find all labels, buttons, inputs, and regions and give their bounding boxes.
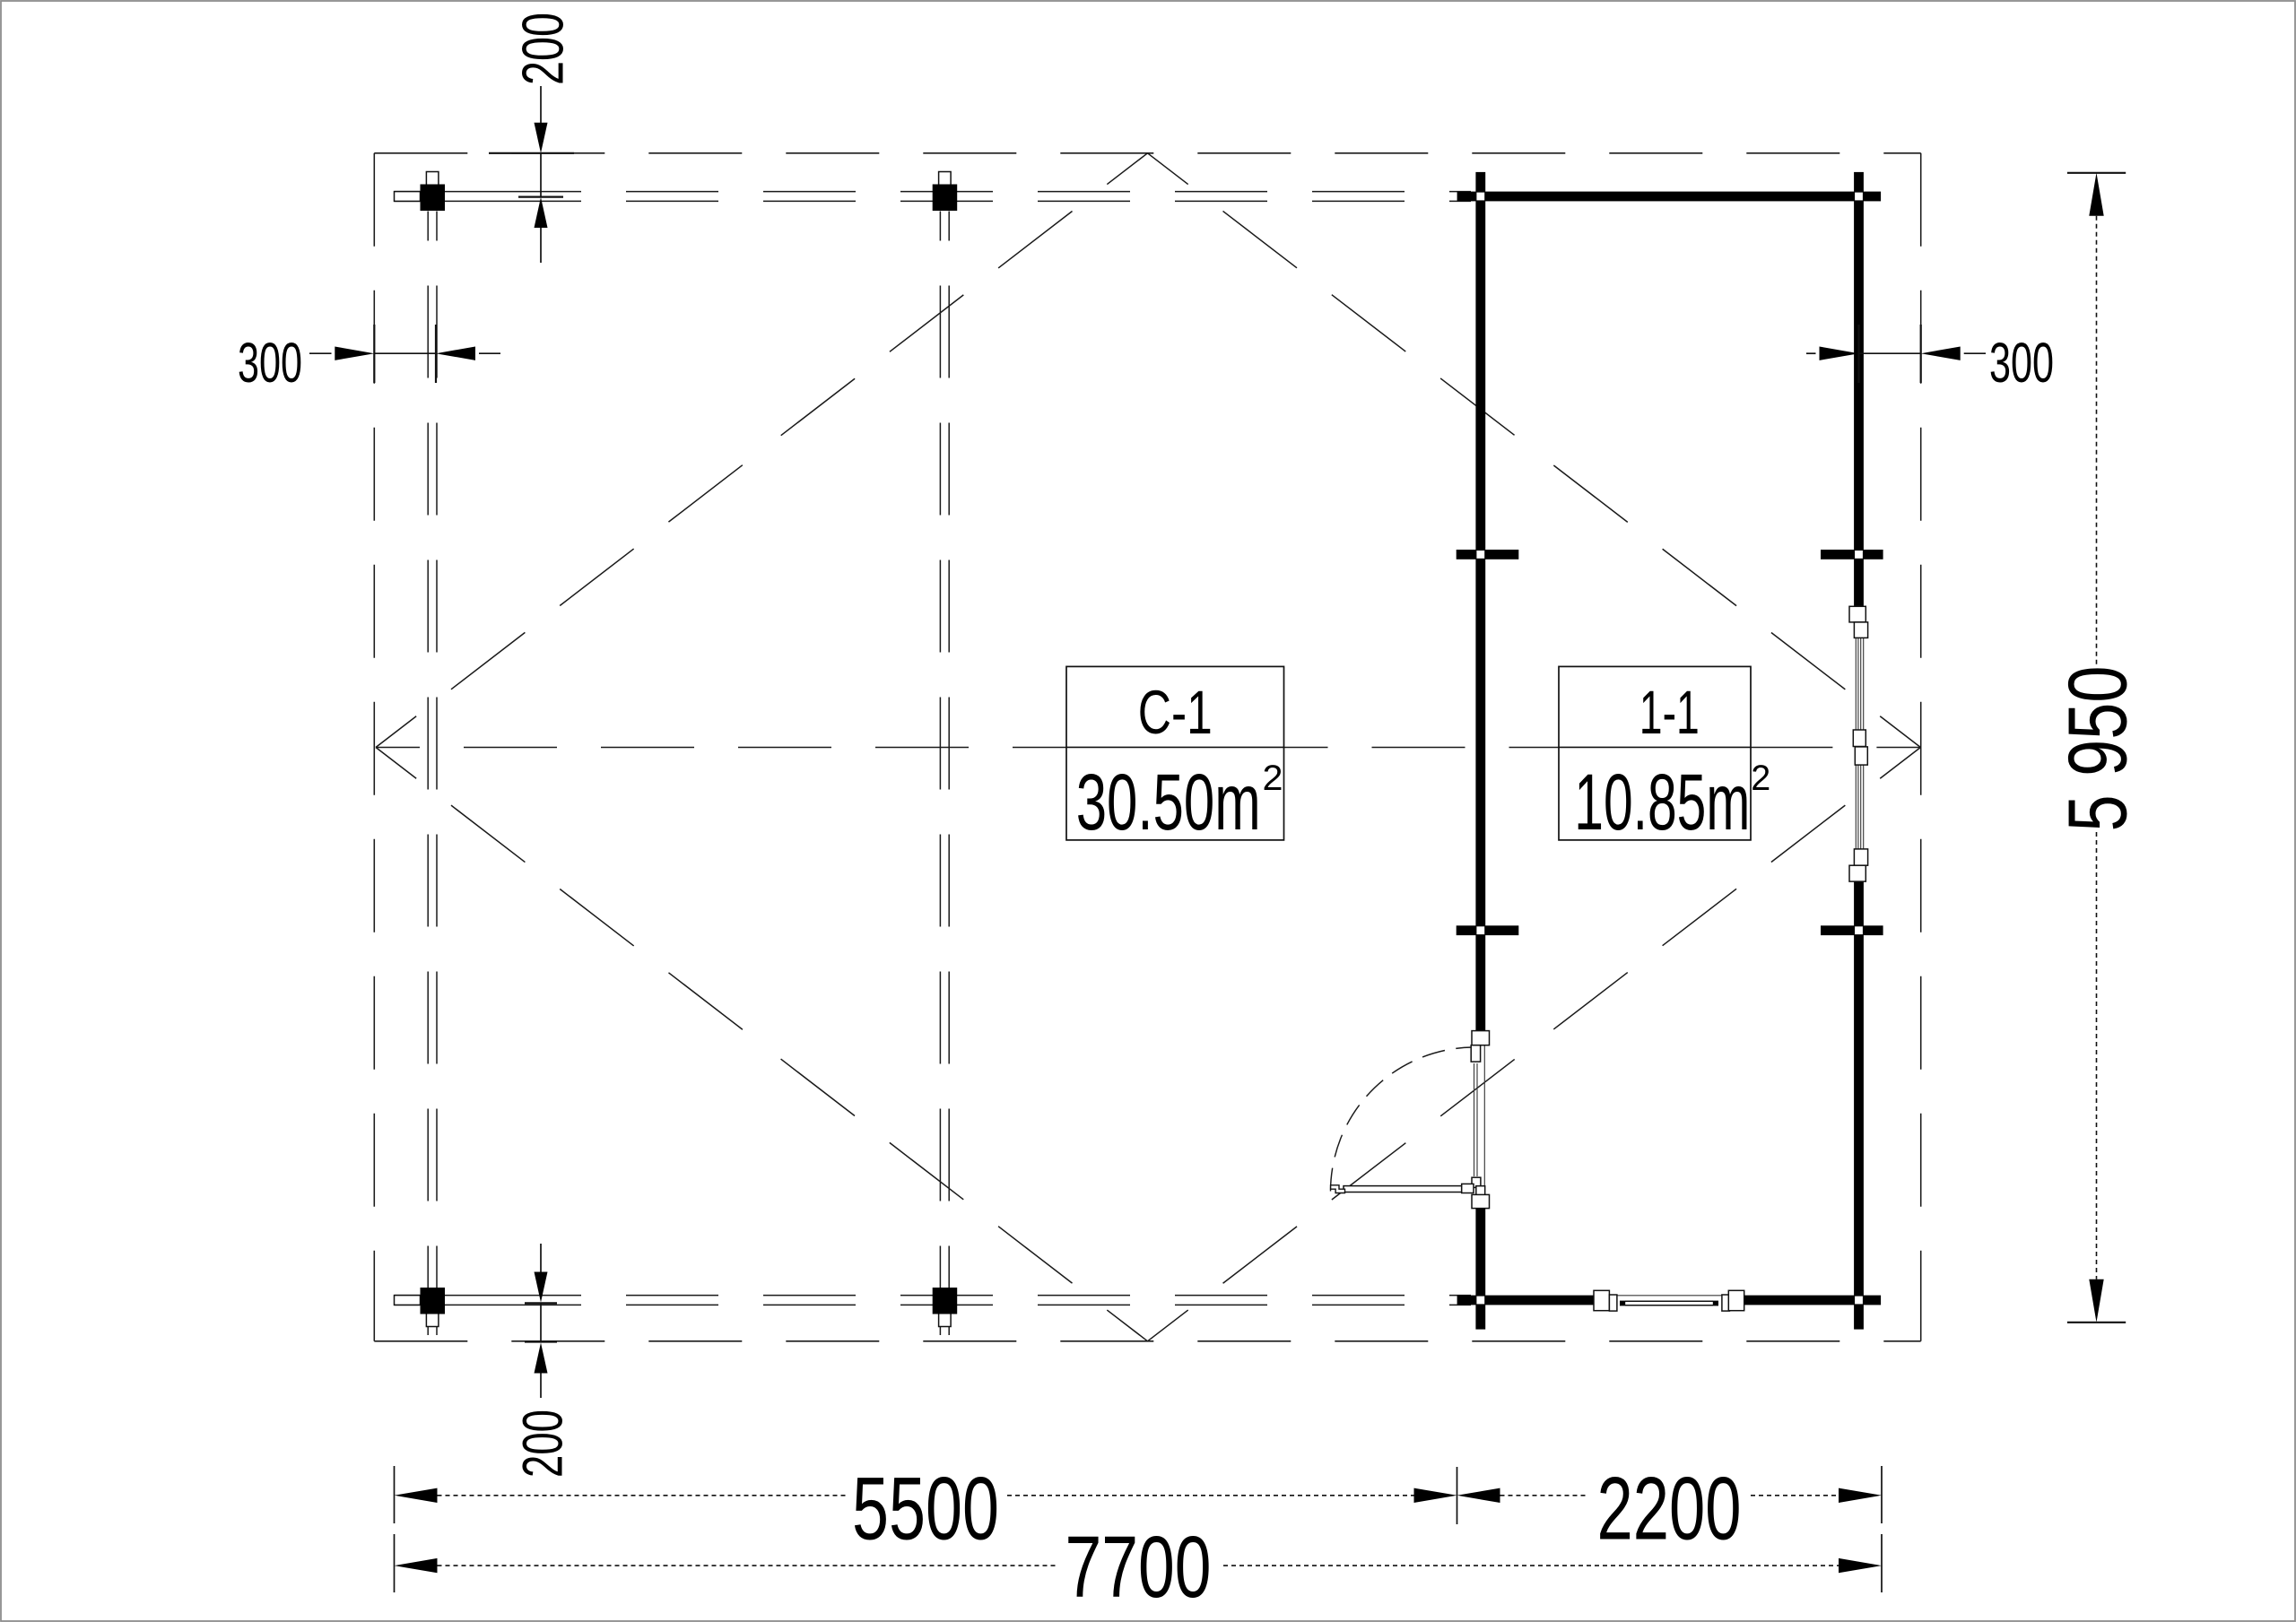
svg-text:10.85m: 10.85m (1574, 757, 1750, 846)
svg-text:2: 2 (1751, 759, 1770, 798)
svg-text:C-1: C-1 (1138, 678, 1213, 747)
svg-text:2200: 2200 (1597, 1459, 1742, 1558)
svg-text:300: 300 (1989, 332, 2054, 395)
svg-text:300: 300 (238, 332, 302, 395)
svg-text:30.50m: 30.50m (1076, 757, 1261, 846)
svg-text:200: 200 (510, 13, 576, 85)
svg-text:2: 2 (1263, 759, 1283, 798)
svg-text:1-1: 1-1 (1639, 678, 1700, 747)
svg-text:200: 200 (511, 1409, 574, 1478)
svg-text:5500: 5500 (852, 1459, 999, 1558)
svg-text:7700: 7700 (1065, 1518, 1212, 1616)
svg-text:5 950: 5 950 (2051, 666, 2144, 832)
